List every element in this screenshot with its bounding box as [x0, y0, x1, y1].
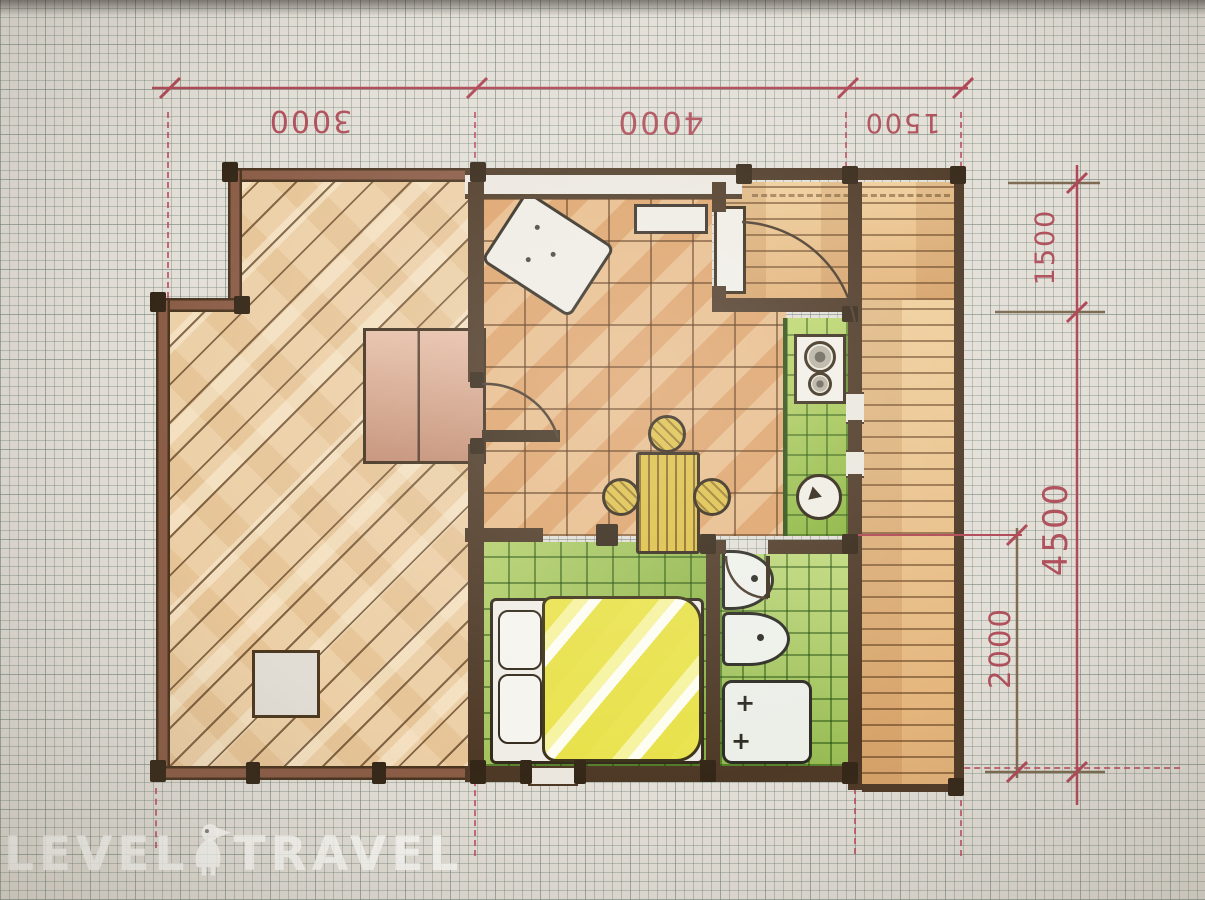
pillow-icon	[498, 610, 542, 670]
stool-icon	[648, 415, 686, 453]
post	[372, 762, 386, 784]
entry-door-leaf	[714, 206, 746, 294]
post	[574, 760, 586, 784]
post	[222, 162, 238, 182]
post	[842, 534, 858, 554]
burner-icon	[804, 341, 836, 373]
watermark-text-right: TRAVEL	[233, 827, 463, 882]
post	[150, 760, 166, 782]
kitchen-sink-icon	[796, 474, 842, 520]
bottom-wall	[578, 766, 862, 782]
entry-porch-deck	[726, 182, 958, 300]
pillow-icon	[498, 674, 542, 744]
post	[948, 778, 964, 796]
post	[246, 762, 260, 784]
window-opening	[528, 766, 578, 786]
dimension-label-top-2: 4000	[600, 100, 720, 140]
side-deck	[862, 300, 958, 790]
post	[470, 438, 484, 454]
post	[470, 372, 484, 388]
watermark-text-left: LEVEL	[4, 827, 189, 882]
watermark-logo: LEVEL TRAVEL	[4, 822, 463, 886]
deck-bottom-edge	[862, 784, 962, 792]
wall-entry	[712, 286, 726, 312]
bathroom-divider-wall	[706, 540, 720, 782]
post	[736, 164, 752, 184]
duvet-icon	[542, 596, 702, 762]
post	[700, 534, 716, 554]
construction-line	[167, 112, 169, 308]
stool-icon	[602, 478, 640, 516]
post	[470, 760, 486, 784]
dimension-label-right-1: 1500	[1030, 197, 1070, 297]
post	[842, 166, 858, 184]
floor-plan-sketch: ++	[0, 0, 1205, 900]
wall	[228, 168, 482, 182]
wall-left	[468, 182, 484, 382]
post	[700, 760, 716, 782]
wall	[156, 298, 170, 780]
bedroom-top-wall	[465, 528, 543, 542]
window-bench-icon	[634, 204, 708, 234]
dimension-label-top-1: 3000	[250, 98, 370, 138]
post	[150, 292, 166, 312]
terrace-hatch	[252, 650, 320, 718]
dimension-label-right-2: 4500	[1036, 469, 1080, 589]
bathroom-top-wall	[768, 540, 848, 554]
wall	[156, 766, 482, 780]
wall-top	[465, 168, 742, 202]
post	[950, 166, 966, 184]
post	[842, 762, 858, 784]
construction-line	[854, 788, 856, 854]
counter-edge	[783, 318, 787, 536]
post	[520, 760, 532, 784]
bird-logo-icon	[187, 822, 233, 880]
wall-right	[848, 420, 862, 450]
dining-table-icon	[636, 452, 700, 554]
stool-icon	[693, 478, 731, 516]
wall-entry	[712, 182, 726, 212]
post	[234, 296, 250, 314]
dimension-label-right-3: 2000	[983, 593, 1023, 703]
wall-right	[848, 182, 862, 392]
post	[470, 162, 486, 182]
dimension-label-top-3: 1500	[852, 102, 952, 138]
terrace-door-leaf	[482, 430, 560, 442]
wall-right	[848, 474, 862, 790]
deck-right-edge	[954, 168, 964, 792]
post	[842, 306, 858, 322]
wall	[228, 168, 242, 312]
shower-tray-icon: ++	[722, 680, 812, 764]
post	[596, 524, 618, 546]
burner-icon	[808, 372, 832, 396]
wall-left	[468, 444, 484, 780]
